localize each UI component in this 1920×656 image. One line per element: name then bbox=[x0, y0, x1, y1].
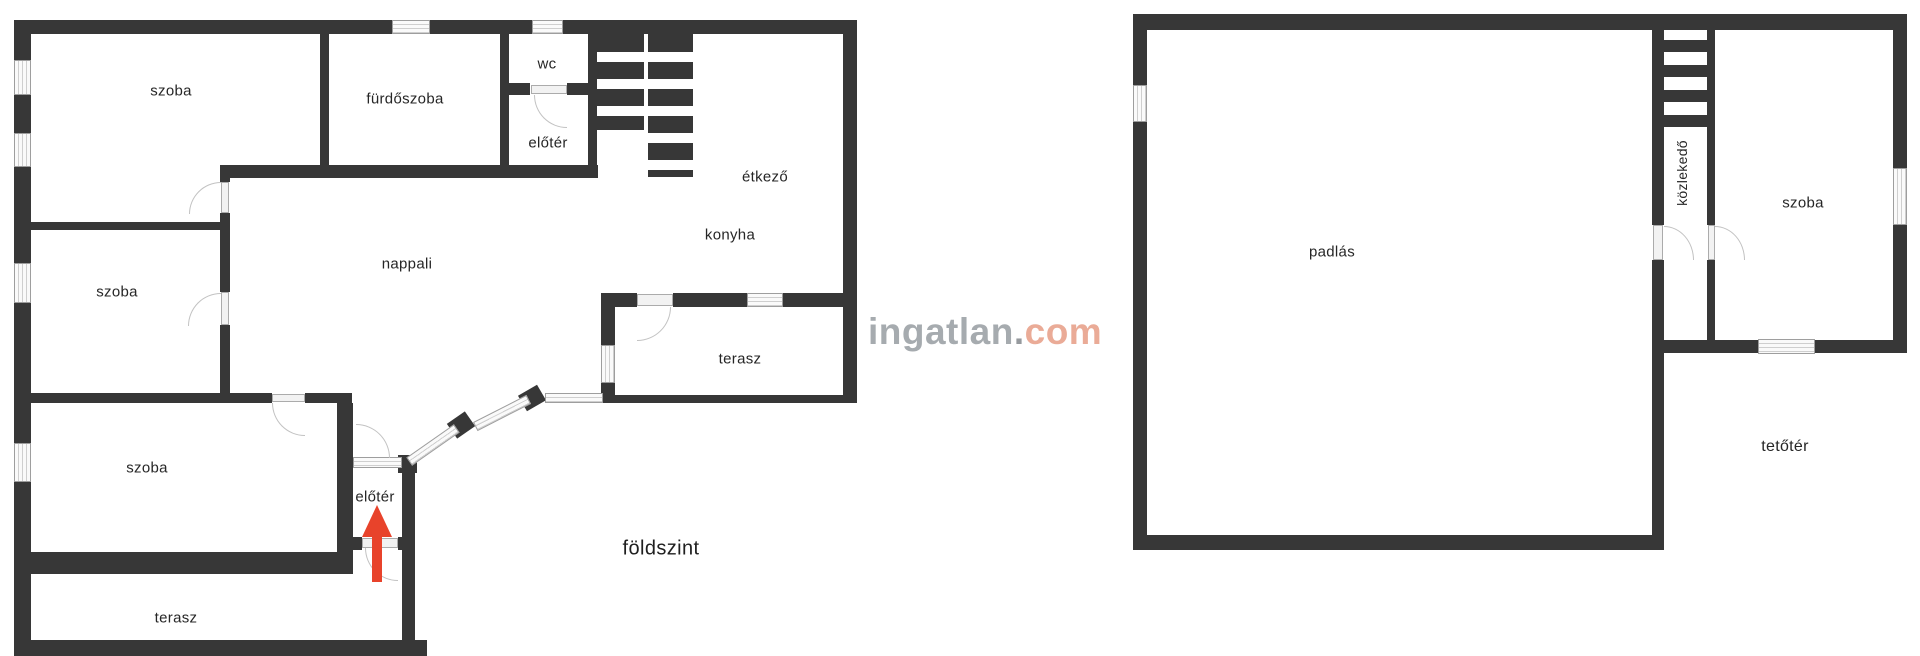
room-label-konyha: konyha bbox=[705, 227, 755, 244]
room-label-terasz-bottom: terasz bbox=[155, 610, 198, 627]
gf-stairs-left-step bbox=[597, 34, 644, 52]
room-label-furdoszoba: fürdőszoba bbox=[366, 91, 443, 108]
floor-label-ground: földszint bbox=[623, 538, 700, 561]
gf-wall-wc-bottom-right bbox=[567, 83, 597, 95]
gf-glazing-segment-b bbox=[473, 395, 531, 431]
gf-door-entry-inner-arc bbox=[356, 424, 390, 458]
watermark-brand: ingatlan bbox=[868, 311, 1014, 352]
room-label-szoba-bottom: szoba bbox=[126, 460, 168, 477]
at-door-corridor-leaf bbox=[1653, 225, 1663, 260]
gf-glazing-segment-a bbox=[406, 424, 459, 465]
gf-door-room2-leaf bbox=[221, 292, 229, 325]
gf-window-top-bathroom bbox=[392, 20, 430, 34]
room-label-kozlekedo: közlekedő bbox=[1674, 140, 1690, 206]
gf-wall-room3-top-right bbox=[305, 393, 352, 403]
at-stairs-step bbox=[1660, 65, 1707, 77]
gf-window-top-wc bbox=[532, 20, 563, 34]
at-window-right bbox=[1893, 168, 1907, 225]
gf-door-wc-leaf bbox=[531, 85, 567, 94]
gf-stairs-left-step bbox=[597, 62, 644, 79]
entrance-arrow-shaft bbox=[372, 535, 382, 582]
watermark-logo: ingatlan.com bbox=[868, 311, 1102, 353]
gf-stairs-left-step bbox=[597, 89, 644, 106]
gf-wall-entry-right bbox=[402, 467, 415, 656]
gf-wall-terrace1-top-left bbox=[601, 293, 637, 307]
room-label-nappali: nappali bbox=[382, 256, 432, 273]
gf-stairs-right-step bbox=[648, 89, 693, 106]
room-label-wc: wc bbox=[538, 56, 557, 73]
gf-wall-hall-bottom bbox=[220, 165, 598, 178]
at-window-szoba-bottom bbox=[1758, 339, 1815, 354]
gf-door-room3-arc bbox=[272, 403, 305, 436]
gf-window-terrace1-top bbox=[747, 293, 783, 307]
at-wall-corridor-right-a bbox=[1707, 30, 1715, 225]
gf-wall-bathroom-left bbox=[320, 34, 329, 165]
gf-window-left-1 bbox=[14, 60, 31, 95]
gf-entry-glazed-door bbox=[353, 457, 402, 468]
at-door-corridor-arc bbox=[1664, 226, 1694, 260]
gf-door-terrace1-arc bbox=[637, 307, 671, 341]
gf-glazing-segment-c bbox=[545, 393, 603, 403]
room-label-szoba-top: szoba bbox=[150, 83, 192, 100]
gf-stairs-right-step bbox=[648, 143, 693, 160]
gf-door-terrace1-leaf bbox=[637, 294, 673, 306]
at-wall-padlas-right-a bbox=[1652, 30, 1664, 225]
gf-door-wc-arc bbox=[534, 95, 567, 128]
gf-window-left-4 bbox=[14, 443, 31, 482]
gf-door-room2-arc bbox=[188, 293, 221, 326]
at-wall-bottom bbox=[1133, 535, 1664, 550]
gf-window-left-2 bbox=[14, 133, 31, 167]
gf-wall-room3-right bbox=[337, 403, 353, 574]
floor-label-attic: tetőtér bbox=[1761, 438, 1808, 456]
room-label-etkezo: étkező bbox=[742, 169, 788, 186]
watermark-dot: . bbox=[1014, 311, 1025, 352]
gf-wall-livingroom-left-b bbox=[220, 213, 230, 292]
room-label-szoba-attic: szoba bbox=[1782, 195, 1824, 212]
gf-wall-top bbox=[14, 20, 857, 34]
at-wall-top bbox=[1133, 14, 1907, 30]
at-stairs-step bbox=[1660, 115, 1707, 127]
gf-window-left-3 bbox=[14, 263, 31, 303]
gf-door-room3-leaf bbox=[272, 394, 305, 402]
at-door-szoba-leaf bbox=[1708, 225, 1715, 260]
at-door-szoba-arc bbox=[1715, 226, 1745, 260]
room-label-terasz-mid: terasz bbox=[719, 351, 762, 368]
gf-window-terrace1-left bbox=[601, 345, 615, 383]
entrance-arrow-icon bbox=[362, 505, 392, 537]
gf-stairs-right-step bbox=[648, 170, 693, 177]
room-label-eloter-entry: előtér bbox=[355, 489, 394, 506]
at-window-left bbox=[1133, 85, 1147, 122]
gf-stairs-right-step bbox=[648, 34, 693, 52]
gf-stairs-left-step bbox=[597, 116, 644, 130]
room-label-eloter-top: előtér bbox=[528, 135, 567, 152]
gf-stairs-right-step bbox=[648, 62, 693, 79]
room-label-szoba-mid: szoba bbox=[96, 284, 138, 301]
gf-wall-entry-left-stub bbox=[353, 537, 362, 550]
gf-wall-room-divider bbox=[14, 222, 220, 230]
at-wall-corridor-right-b bbox=[1707, 260, 1715, 352]
gf-wall-room3-bottom bbox=[14, 552, 353, 574]
gf-wall-terrace1-bottom bbox=[601, 395, 857, 403]
gf-wall-room3-top-left bbox=[14, 393, 272, 403]
gf-door-room1-arc bbox=[189, 182, 221, 214]
gf-wall-right bbox=[843, 20, 857, 403]
gf-door-room1-leaf bbox=[221, 182, 229, 213]
gf-wall-livingroom-left-c bbox=[220, 325, 230, 403]
floorplan-image: szoba fürdőszoba wc előtér étkező konyha… bbox=[0, 0, 1920, 656]
at-stairs-step bbox=[1660, 90, 1707, 102]
gf-wall-bathroom-right bbox=[500, 34, 509, 165]
at-stairs-step bbox=[1660, 40, 1707, 52]
gf-wall-terrace-bottom bbox=[14, 640, 427, 656]
at-wall-padlas-right-b bbox=[1652, 260, 1664, 535]
watermark-tld: com bbox=[1025, 311, 1103, 352]
gf-stairs-right-step bbox=[648, 116, 693, 133]
gf-wall-wc-bottom-left bbox=[500, 83, 530, 95]
gf-wall-wc-right bbox=[588, 34, 597, 178]
room-label-padlas: padlás bbox=[1309, 244, 1355, 261]
